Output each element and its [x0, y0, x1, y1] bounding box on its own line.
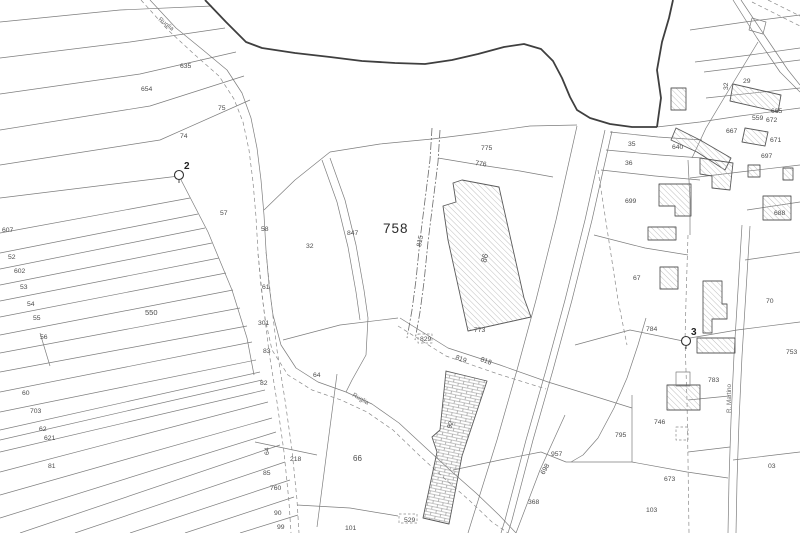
parcel-number-label: 54: [27, 301, 35, 308]
parcel-number-label: 602: [14, 268, 26, 275]
parcel-number-label: 688: [774, 210, 786, 217]
parcel-number-label: 672: [766, 117, 778, 124]
parcel-number-label: 753: [786, 349, 798, 356]
parcel-number-label: 957: [551, 451, 563, 458]
hatched-building: [660, 267, 678, 289]
parcel-number-label: 35: [628, 141, 636, 148]
parcel-number-label: 90: [274, 510, 282, 517]
parcel-number-label: 550: [145, 308, 158, 317]
parcel-number-label: 36: [625, 160, 633, 167]
parcel-number-label: 75: [218, 105, 226, 112]
parcel-number-label: 783: [708, 377, 720, 384]
parcel-number-label: 32: [723, 82, 730, 90]
parcel-number-label: 32: [306, 243, 314, 250]
parcel-number-label: 699: [625, 198, 637, 205]
parcel-number-label: 559: [752, 115, 764, 122]
parcel-number-label: 640: [672, 144, 684, 151]
hatched-building: [783, 168, 793, 180]
parcel-number-label: 67: [633, 275, 641, 282]
parcel-number-label: 52: [8, 254, 16, 261]
parcel-number-label: 61: [262, 284, 270, 291]
hatched-building: [671, 88, 686, 110]
parcel-number-label: 621: [44, 435, 56, 442]
parcel-number-label: 847: [347, 230, 359, 237]
parcel-number-label: 635: [180, 63, 192, 70]
parcel-number-label: 03: [768, 463, 776, 470]
parcel-number-label: 29: [743, 78, 751, 85]
parcel-number-label: 775: [481, 145, 493, 152]
parcel-number-label: 607: [2, 227, 14, 234]
parcel-number-label: 697: [761, 153, 773, 160]
parcel-number-label: 368: [528, 499, 540, 506]
parcel-number-label: 665: [771, 108, 783, 115]
cadastral-map-page: 6356547574575860752602535455565506130160…: [0, 0, 800, 533]
parcel-number-label: 103: [646, 507, 658, 514]
parcel-number-label: 64: [264, 447, 271, 455]
parcel-number-label: 703: [30, 408, 42, 415]
parcel-758-label: 758: [383, 221, 409, 236]
parcel-number-label: 101: [345, 525, 357, 532]
parcel-number-label: 53: [20, 284, 28, 291]
survey-marker-circle-2: [175, 171, 184, 180]
parcel-number-label: 85: [263, 470, 271, 477]
parcel-number-label: 301: [258, 320, 270, 327]
parcel-number-label: 55: [33, 315, 41, 322]
map-svg: 6356547574575860752602535455565506130160…: [0, 0, 800, 533]
hatched-building: [697, 338, 735, 353]
parcel-number-label: 57: [220, 210, 228, 217]
parcel-number-label: 760: [270, 485, 282, 492]
survey-marker-number-3: 3: [691, 327, 697, 338]
parcel-number-label: 218: [290, 456, 302, 463]
road-name-label: R. Martino: [726, 383, 733, 413]
parcel-number-label: 654: [141, 86, 153, 93]
parcel-number-label: 70: [766, 298, 774, 305]
parcel-number-label: 62: [39, 426, 47, 433]
parcel-number-label: 99: [277, 524, 285, 531]
parcel-number-label: 784: [646, 326, 658, 333]
parcel-number-label: 529: [404, 517, 416, 524]
parcel-number-label: 58: [261, 226, 269, 233]
parcel-number-label: 60: [22, 390, 30, 397]
parcel-number-label: 74: [180, 133, 188, 140]
parcel-number-label: 82: [260, 380, 268, 387]
parcel-number-label: 829: [420, 336, 432, 343]
parcel-number-label: 66: [353, 454, 362, 463]
parcel-number-label: 795: [615, 432, 627, 439]
parcel-number-label: 64: [313, 372, 321, 379]
parcel-number-label: 667: [726, 128, 738, 135]
survey-marker-number-2: 2: [184, 161, 190, 172]
parcel-number-label: 81: [48, 463, 56, 470]
survey-marker-circle-3: [682, 337, 691, 346]
hatched-building: [667, 385, 700, 410]
parcel-number-label: 746: [654, 419, 666, 426]
parcel-number-label: 671: [770, 137, 782, 144]
parcel-number-label: 56: [40, 334, 48, 341]
hatched-building: [748, 165, 760, 177]
map-background: [0, 0, 800, 533]
parcel-number-label: 83: [263, 348, 271, 355]
hatched-building: [648, 227, 676, 240]
parcel-number-label: 673: [664, 476, 676, 483]
parcel-number-label: 773: [474, 327, 486, 334]
